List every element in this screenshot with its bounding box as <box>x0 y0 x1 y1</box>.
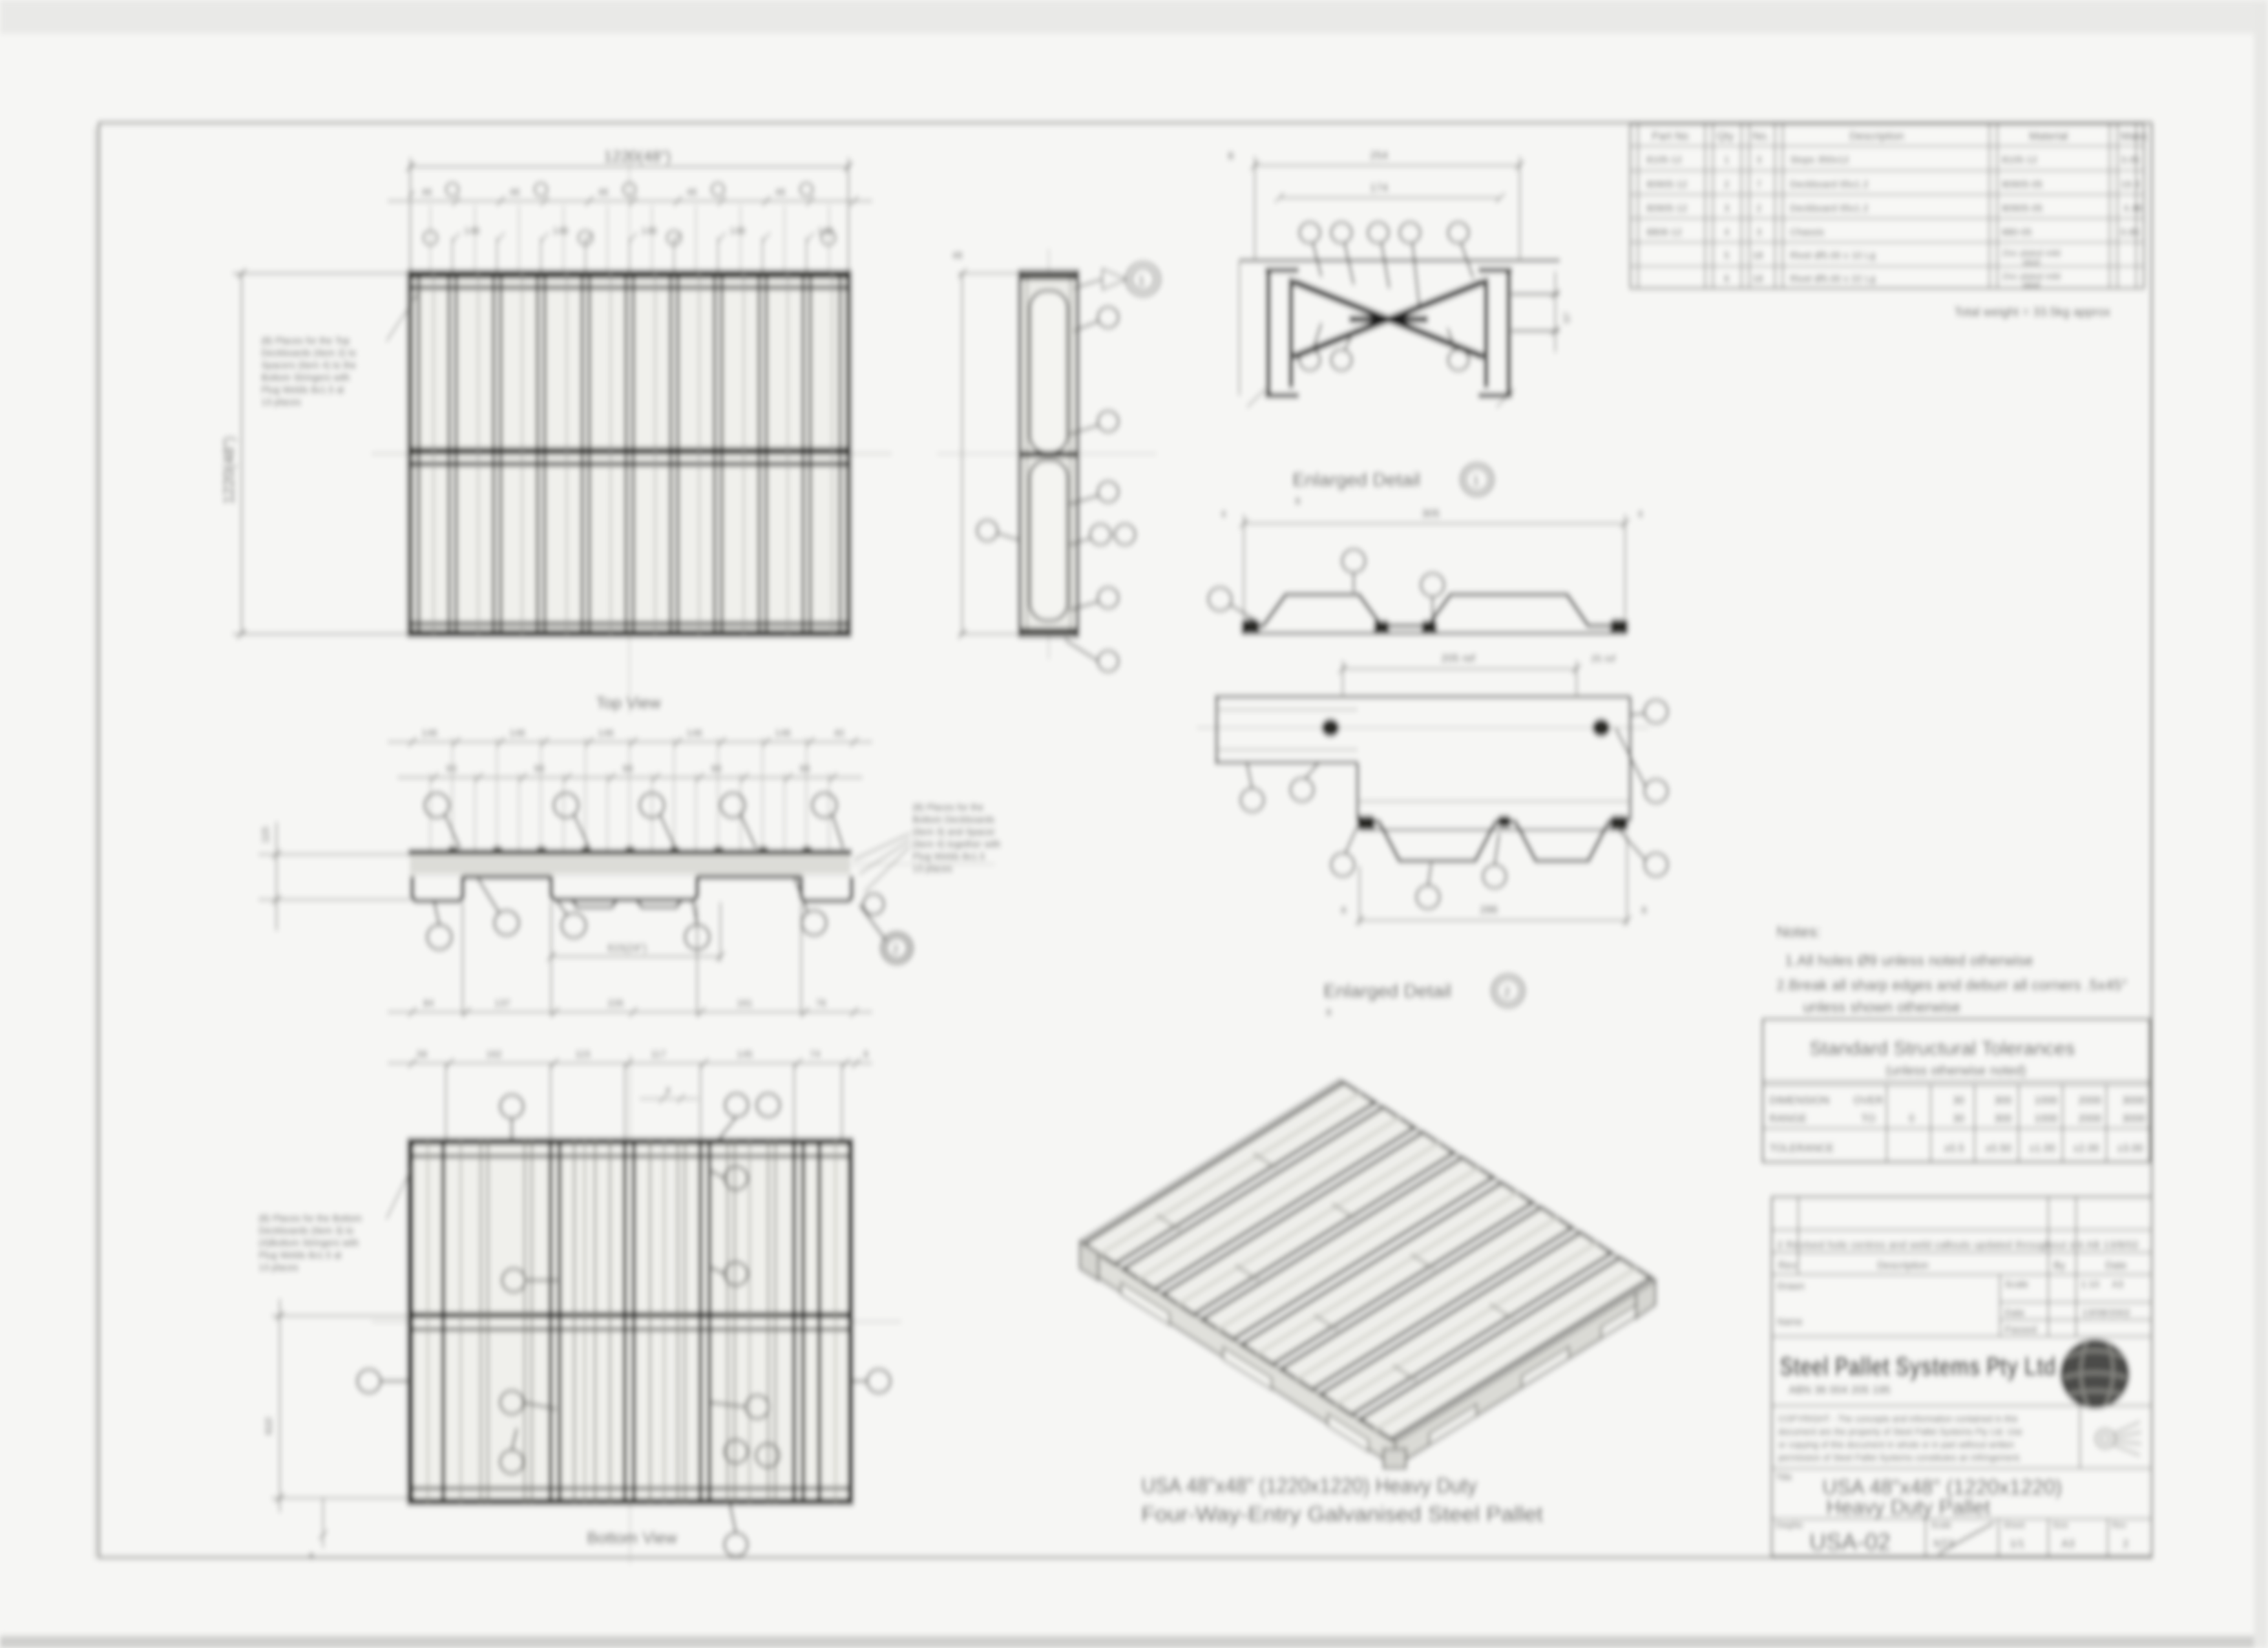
svg-text:205 ref: 205 ref <box>1441 652 1475 664</box>
svg-text:0.85: 0.85 <box>2121 227 2139 238</box>
svg-text:Bottom Stringers with: Bottom Stringers with <box>261 373 350 383</box>
svg-text:286: 286 <box>1480 903 1498 916</box>
svg-text:Enlarged Detail: Enlarged Detail <box>1323 981 1451 1002</box>
svg-text:1/1: 1/1 <box>2010 1537 2025 1550</box>
svg-text:Scale: Scale <box>1931 1520 1952 1530</box>
svg-text:13 places: 13 places <box>258 1263 299 1273</box>
svg-text:Date: Date <box>2105 1260 2127 1271</box>
svg-text:7: 7 <box>1756 179 1761 190</box>
svg-text:3.05: 3.05 <box>2121 154 2139 165</box>
svg-text:Scale: Scale <box>2004 1279 2029 1290</box>
svg-text:No.: No. <box>1752 130 1769 142</box>
svg-text:A3: A3 <box>2112 1279 2123 1290</box>
svg-text:Material: Material <box>2029 130 2068 142</box>
svg-text:146: 146 <box>730 226 746 237</box>
svg-text:18: 18 <box>1752 273 1763 284</box>
svg-text:Rivet Ø5.00 x 22 Lg: Rivet Ø5.00 x 22 Lg <box>1790 273 1876 284</box>
svg-text:46: 46 <box>598 187 609 198</box>
svg-text:±3.00: ±3.00 <box>2117 1143 2143 1154</box>
svg-text:OVER: OVER <box>1853 1095 1884 1106</box>
svg-text:(8) Places for the Bottom: (8) Places for the Bottom <box>258 1214 362 1224</box>
svg-text:13 places: 13 places <box>261 397 301 408</box>
svg-text:RANGE: RANGE <box>1769 1113 1807 1125</box>
svg-text:Total weight = 33.5kg appr: Total weight = 33.5kg approx <box>1954 306 2111 319</box>
svg-text:DIMENSION: DIMENSION <box>1769 1095 1830 1106</box>
svg-text:Size: Size <box>2052 1520 2068 1530</box>
svg-text:30: 30 <box>1953 1113 1964 1125</box>
svg-text:5: 5 <box>1724 250 1729 261</box>
svg-text:Deckboard 05x1.2: Deckboard 05x1.2 <box>1790 203 1869 214</box>
svg-text:Sheet: Sheet <box>2003 1520 2025 1530</box>
svg-text:80905-12: 80905-12 <box>1646 179 1687 190</box>
svg-text:Deckboards (Item 2) to: Deckboards (Item 2) to <box>261 348 356 359</box>
svg-text:8: 8 <box>666 1085 671 1095</box>
svg-text:146: 146 <box>598 728 614 739</box>
svg-text:permission of Steel Pallet Sys: permission of Steel Pallet Systems const… <box>1778 1453 2022 1463</box>
svg-text:8806-12: 8806-12 <box>1646 227 1682 238</box>
svg-text:2000: 2000 <box>2078 1095 2102 1106</box>
svg-text:2: 2 <box>892 943 899 956</box>
svg-text:300: 300 <box>1994 1113 2012 1125</box>
svg-text:2 Revised hole centres and we: 2 Revised hole centres and weld callouts… <box>1777 1240 2139 1251</box>
svg-text:146: 146 <box>775 728 791 739</box>
svg-text:115: 115 <box>260 827 271 843</box>
svg-text:Top View: Top View <box>596 694 662 712</box>
svg-text:146: 146 <box>686 728 702 739</box>
svg-text:3000: 3000 <box>2122 1095 2146 1106</box>
svg-text:Passed: Passed <box>2004 1324 2037 1335</box>
svg-text:25 ref: 25 ref <box>1591 653 1616 664</box>
svg-text:Four-Way-Entry Galvanised Stee: Four-Way-Entry Galvanised Steel Pallet <box>1141 1502 1543 1526</box>
svg-text:145: 145 <box>737 1049 753 1060</box>
svg-text:880-05: 880-05 <box>2002 227 2032 238</box>
svg-text:98: 98 <box>711 763 722 774</box>
svg-text:137: 137 <box>494 998 510 1009</box>
svg-text:By: By <box>2053 1260 2066 1271</box>
svg-text:13/08/2002: 13/08/2002 <box>2082 1307 2130 1318</box>
svg-text:B: B <box>1326 1007 1332 1017</box>
svg-text:2: 2 <box>2123 1537 2128 1550</box>
svg-text:57: 57 <box>1562 312 1573 323</box>
svg-text:46: 46 <box>686 187 697 198</box>
svg-text:(Item 4) together with: (Item 4) together with <box>912 840 1001 850</box>
svg-text:document are the property of S: document are the property of Steel Palle… <box>1778 1427 2022 1437</box>
svg-text:174: 174 <box>1370 182 1388 194</box>
svg-text:46: 46 <box>775 187 786 198</box>
svg-text:USA-02: USA-02 <box>1809 1528 1891 1555</box>
svg-text:0: 0 <box>1909 1113 1915 1125</box>
svg-text:Bottom View: Bottom View <box>587 1529 678 1547</box>
svg-text:NTS: NTS <box>1933 1537 1955 1550</box>
svg-text:±1.00: ±1.00 <box>2029 1143 2055 1154</box>
svg-text:Title: Title <box>1776 1472 1792 1482</box>
svg-text:B: B <box>1228 151 1234 162</box>
svg-text:40: 40 <box>834 728 845 739</box>
svg-text:B: B <box>1641 905 1647 915</box>
svg-text:46: 46 <box>509 187 520 198</box>
svg-text:(8) Places for the: (8) Places for the <box>912 803 983 813</box>
svg-text:steel: steel <box>2022 280 2041 290</box>
svg-text:4.46: 4.46 <box>2123 203 2142 214</box>
svg-text:Zinc plated mild: Zinc plated mild <box>2002 248 2061 258</box>
svg-text:Plug Welds 8x1.5: Plug Welds 8x1.5 <box>912 852 985 862</box>
svg-text:3000: 3000 <box>2122 1113 2146 1125</box>
svg-text:Part No: Part No <box>1652 130 1689 142</box>
svg-text:146: 146 <box>641 226 657 237</box>
svg-text:76: 76 <box>815 998 826 1009</box>
svg-text:226: 226 <box>607 998 624 1009</box>
svg-text:Stops 350x12: Stops 350x12 <box>1790 154 1849 165</box>
svg-text:Drawn: Drawn <box>1777 1281 1805 1292</box>
svg-text:Spacers (Item 4) to the: Spacers (Item 4) to the <box>261 361 356 371</box>
svg-text:146: 146 <box>421 728 437 739</box>
svg-text:6: 6 <box>1724 273 1729 284</box>
svg-text:Rev: Rev <box>2112 1520 2127 1530</box>
svg-text:615(24"): 615(24") <box>607 943 647 954</box>
svg-text:±2.00: ±2.00 <box>2073 1143 2099 1154</box>
svg-text:unless shown otherwise: unless shown otherwise <box>1803 998 1960 1015</box>
svg-text:162: 162 <box>486 1049 502 1060</box>
svg-text:80905-05: 80905-05 <box>2002 203 2042 214</box>
svg-text:117: 117 <box>651 1049 666 1060</box>
svg-text:1000: 1000 <box>2034 1095 2058 1106</box>
svg-text:19.3: 19.3 <box>2121 179 2139 190</box>
svg-text:46: 46 <box>421 187 432 198</box>
svg-text:300: 300 <box>1994 1095 2012 1106</box>
svg-text:Chassis: Chassis <box>1790 227 1824 238</box>
svg-text:COPYRIGHT - The concepts and i: COPYRIGHT - The concepts and information… <box>1778 1414 2018 1424</box>
svg-text:(8) Places for the Top: (8) Places for the Top <box>261 336 350 346</box>
svg-text:B: B <box>1295 496 1301 506</box>
svg-text:or copying of this document in: or copying of this document in whole or … <box>1778 1440 2014 1450</box>
svg-text:Enlarged Detail: Enlarged Detail <box>1292 470 1420 491</box>
svg-text:6: 6 <box>1638 509 1643 519</box>
svg-text:98: 98 <box>622 763 633 774</box>
svg-text:TOLERANCE: TOLERANCE <box>1769 1143 1834 1154</box>
svg-text:84: 84 <box>423 998 434 1009</box>
svg-text:1: 1 <box>1138 274 1145 288</box>
svg-text:(4)Bottom Stringers with: (4)Bottom Stringers with <box>258 1238 359 1249</box>
svg-text:146: 146 <box>817 226 834 237</box>
svg-text:Name: Name <box>1777 1316 1803 1327</box>
svg-text:2000: 2000 <box>2078 1113 2102 1125</box>
svg-text:ABN 36 004 205 195: ABN 36 004 205 195 <box>1789 1384 1891 1396</box>
svg-text:2: 2 <box>1724 179 1729 190</box>
svg-text:146: 146 <box>464 226 480 237</box>
svg-text:Notes:: Notes: <box>1776 924 1821 941</box>
svg-text:6: 6 <box>1221 509 1226 519</box>
svg-text:Bottom Deckboards: Bottom Deckboards <box>912 815 994 825</box>
svg-text:254: 254 <box>1370 149 1388 162</box>
svg-text:74: 74 <box>810 1049 821 1060</box>
svg-text:B: B <box>1341 905 1347 915</box>
svg-text:Standard Structural Tolerances: Standard Structural Tolerances <box>1809 1038 2075 1059</box>
svg-text:Rev: Rev <box>1778 1260 1796 1271</box>
svg-text:1.All holes Ø9 unless noted ot: 1.All holes Ø9 unless noted otherwise <box>1785 952 2033 969</box>
svg-text:8: 8 <box>309 1550 314 1561</box>
svg-text:2: 2 <box>1504 986 1511 999</box>
svg-text:Description: Description <box>1877 1260 1929 1271</box>
svg-text:610: 610 <box>264 1417 275 1435</box>
svg-text:4: 4 <box>1724 227 1729 238</box>
svg-text:1: 1 <box>1473 474 1480 488</box>
svg-text:Plug Welds 8x1.5 at: Plug Welds 8x1.5 at <box>258 1251 342 1261</box>
svg-text:Mass: Mass <box>2121 130 2147 142</box>
svg-text:Plug Welds 8x1.5 at: Plug Welds 8x1.5 at <box>261 385 344 396</box>
svg-text:DwgNo: DwgNo <box>1776 1520 1803 1530</box>
svg-text:305: 305 <box>1422 507 1440 520</box>
svg-text:98: 98 <box>446 763 457 774</box>
svg-text:56: 56 <box>417 1049 428 1060</box>
svg-text:3: 3 <box>1756 227 1761 238</box>
svg-text:Rivet Ø5.00 x 10 Lg: Rivet Ø5.00 x 10 Lg <box>1790 250 1876 261</box>
svg-text:1220(48"): 1220(48") <box>220 436 238 504</box>
svg-text:2.Break all sharp edges and de: 2.Break all sharp edges and deburr all c… <box>1776 977 2128 993</box>
svg-text:steel: steel <box>2022 257 2041 267</box>
svg-text:146: 146 <box>509 728 525 739</box>
svg-text:8105-12: 8105-12 <box>1646 154 1682 165</box>
svg-text:1:10: 1:10 <box>2081 1279 2099 1290</box>
svg-text:161: 161 <box>737 998 753 1009</box>
svg-text:1: 1 <box>1724 154 1729 165</box>
svg-text:8105-12: 8105-12 <box>2002 154 2037 165</box>
svg-text:80905-12: 80905-12 <box>1646 203 1687 214</box>
svg-text:30: 30 <box>1953 1095 1964 1106</box>
svg-text:Heavy Duty Pallet: Heavy Duty Pallet <box>1826 1495 1990 1519</box>
svg-text:Qty: Qty <box>1717 130 1734 142</box>
svg-text:1220(48"): 1220(48") <box>604 148 671 165</box>
svg-text:Date: Date <box>2004 1307 2025 1318</box>
svg-text:18: 18 <box>1752 250 1763 261</box>
svg-text:Deckboards (Item 3) to: Deckboards (Item 3) to <box>258 1226 353 1236</box>
svg-text:2: 2 <box>1756 203 1761 214</box>
svg-text:±0.50: ±0.50 <box>1985 1143 2011 1154</box>
svg-text:80905-05: 80905-05 <box>2002 179 2042 190</box>
svg-text:Deckboard 05x1.2: Deckboard 05x1.2 <box>1790 179 1869 190</box>
svg-text:146: 146 <box>552 226 569 237</box>
svg-text:(Item 3) and Spacer: (Item 3) and Spacer <box>912 827 995 838</box>
svg-text:98: 98 <box>799 763 810 774</box>
svg-text:(unless otherwise noted): (unless otherwise noted) <box>1885 1064 2026 1078</box>
svg-text:±0.5: ±0.5 <box>1944 1143 1964 1154</box>
svg-text:Steel Pallet Systems Pty Ltd: Steel Pallet Systems Pty Ltd <box>1780 1351 2056 1381</box>
svg-text:3: 3 <box>1756 154 1761 165</box>
svg-text:1000: 1000 <box>2034 1113 2058 1125</box>
svg-text:USA 48"x48" (1220x1220) Heavy: USA 48"x48" (1220x1220) Heavy Duty <box>1141 1474 1477 1497</box>
svg-text:48: 48 <box>952 250 963 261</box>
svg-text:6: 6 <box>863 1049 868 1060</box>
svg-text:115: 115 <box>575 1049 591 1060</box>
svg-text:3: 3 <box>1724 203 1729 214</box>
svg-text:TO: TO <box>1861 1113 1876 1125</box>
svg-text:98: 98 <box>534 763 545 774</box>
svg-text:A3: A3 <box>2061 1537 2075 1550</box>
svg-text:13 places: 13 places <box>912 864 952 874</box>
svg-text:Description: Description <box>1849 130 1904 142</box>
